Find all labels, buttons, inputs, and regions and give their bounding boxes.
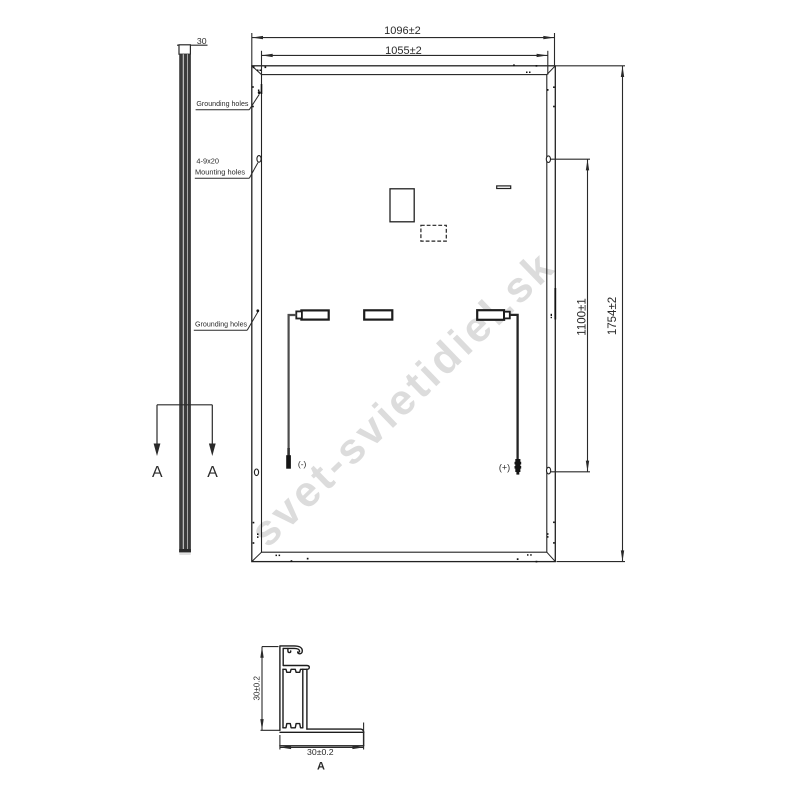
svg-text:A: A [152, 464, 163, 481]
svg-text:30±0.2: 30±0.2 [252, 676, 261, 701]
svg-text:Grounding holes: Grounding holes [196, 100, 249, 108]
svg-text:4-9x20: 4-9x20 [196, 156, 219, 165]
svg-text:30±0.2: 30±0.2 [307, 747, 334, 757]
svg-text:1096±2: 1096±2 [384, 25, 421, 37]
svg-text:30: 30 [197, 36, 207, 46]
svg-text:Grounding holes: Grounding holes [195, 320, 248, 328]
svg-text:(-): (-) [298, 459, 307, 469]
svg-text:Mounting holes: Mounting holes [195, 167, 245, 176]
svg-text:A: A [207, 464, 218, 481]
svg-text:1754±2: 1754±2 [607, 297, 619, 335]
svg-text:A: A [317, 761, 325, 773]
svg-text:(+): (+) [499, 462, 510, 472]
svg-text:1055±2: 1055±2 [385, 45, 422, 57]
svg-text:1100±1: 1100±1 [577, 298, 589, 335]
